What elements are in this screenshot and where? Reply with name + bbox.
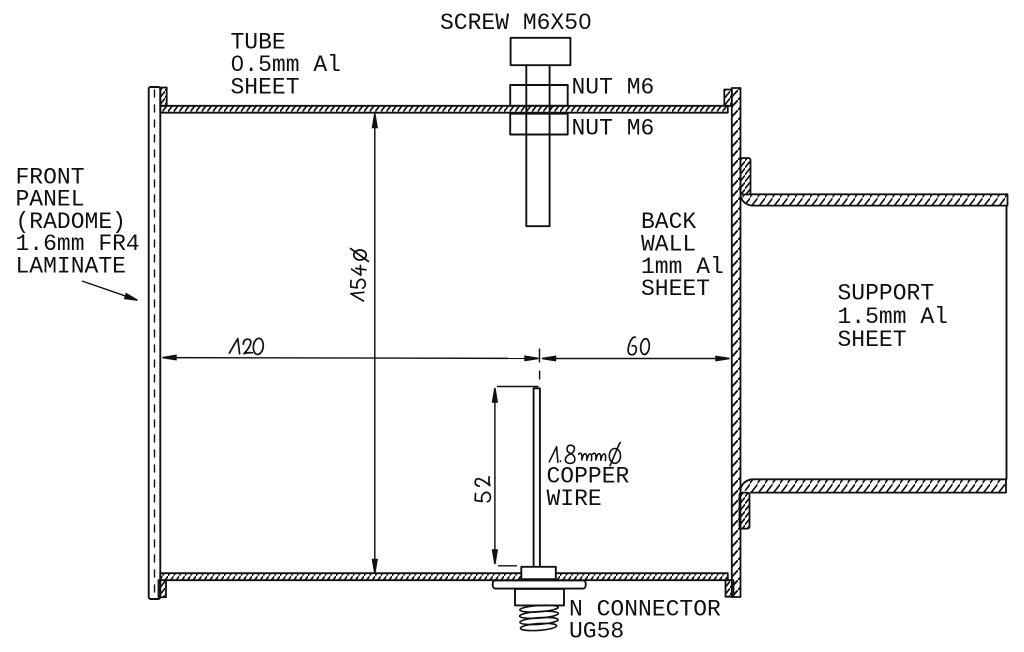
svg-text:SHEET: SHEET [641, 276, 710, 302]
svg-text:SHEET: SHEET [838, 327, 907, 353]
svg-text:SCREW M6X50: SCREW M6X50 [440, 10, 592, 36]
svg-text:WIRE: WIRE [547, 486, 602, 512]
svg-text:SHEET: SHEET [231, 74, 300, 100]
svg-text:SUPPORT: SUPPORT [838, 281, 935, 307]
svg-text:NUT M6: NUT M6 [572, 75, 655, 101]
svg-text:LAMINATE: LAMINATE [16, 254, 126, 280]
svg-text:UG58: UG58 [569, 619, 624, 645]
svg-text:NUT M6: NUT M6 [572, 116, 655, 142]
svg-text:1.5mm Al: 1.5mm Al [838, 304, 948, 330]
